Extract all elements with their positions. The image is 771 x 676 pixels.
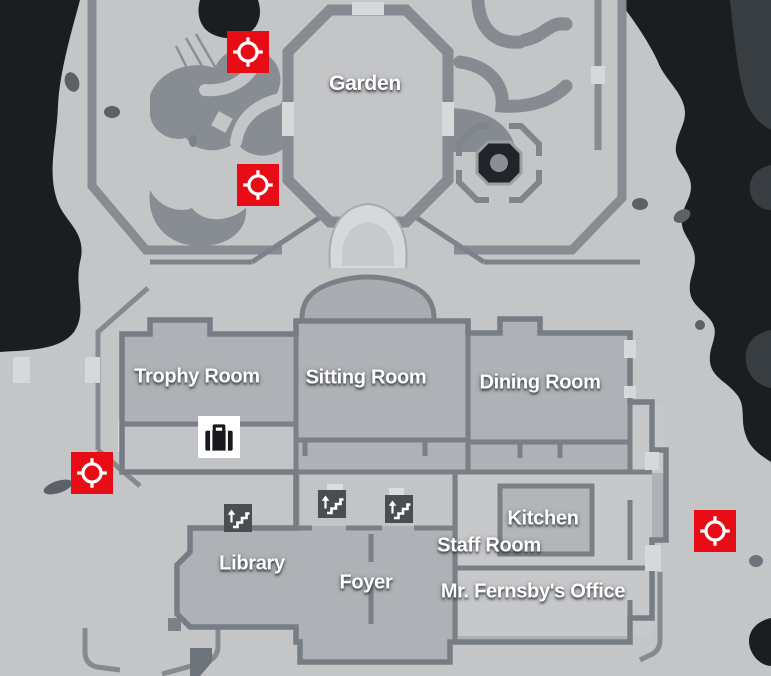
stairs-glyph [224, 504, 252, 532]
stairs-glyph [385, 495, 413, 523]
target-crosshair-glyph [227, 31, 269, 73]
map-canvas[interactable] [0, 0, 771, 676]
briefcase-marker-icon[interactable] [198, 416, 240, 458]
target-marker-icon[interactable] [71, 452, 113, 494]
stairs-up-icon[interactable] [224, 504, 252, 532]
game-map-screen: Garden Trophy Room Sitting Room Dining R… [0, 0, 771, 676]
stairs-glyph [318, 490, 346, 518]
target-marker-icon[interactable] [237, 164, 279, 206]
stairs-up-icon[interactable] [385, 495, 413, 523]
mansion-floorplan [122, 277, 666, 662]
central-garden-octagon [282, 2, 454, 228]
target-crosshair-glyph [71, 452, 113, 494]
stairs-up-icon[interactable] [318, 490, 346, 518]
target-marker-icon[interactable] [227, 31, 269, 73]
briefcase-glyph [198, 416, 240, 458]
target-crosshair-glyph [694, 510, 736, 552]
target-crosshair-glyph [237, 164, 279, 206]
target-marker-icon[interactable] [694, 510, 736, 552]
